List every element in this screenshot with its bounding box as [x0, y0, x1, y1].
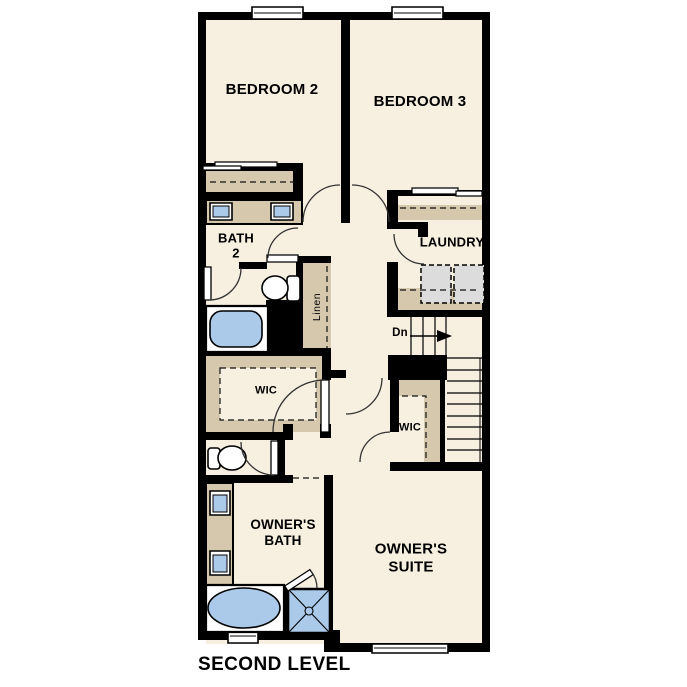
- owners-bath-label: OWNER'SBATH: [250, 517, 315, 549]
- toilet-room-door: [271, 441, 278, 475]
- washer: [421, 265, 451, 303]
- bedroom2-window: [252, 7, 303, 19]
- wic-right-label: WIC: [399, 422, 421, 435]
- bath2-sink-2: [271, 203, 293, 220]
- bedroom3-label: BEDROOM 3: [374, 93, 467, 111]
- wic-left-door: [321, 380, 329, 432]
- owners-oval-tub: [206, 585, 284, 632]
- bedroom2-label: BEDROOM 2: [226, 81, 319, 99]
- wic-left-label: WIC: [255, 385, 277, 398]
- floor-plan-drawing: [0, 0, 687, 687]
- plan-title: SECOND LEVEL: [198, 654, 351, 676]
- linen-label: Linen: [311, 293, 323, 321]
- stairs-down-label: Dn: [392, 327, 408, 341]
- bedroom3-window: [392, 7, 443, 19]
- bath2-compartment-door: [204, 267, 211, 300]
- floor-plan: BEDROOM 2 BEDROOM 3 BATH2 LAUNDRY Linen …: [0, 0, 687, 687]
- owners-sink: [210, 491, 230, 515]
- laundry-label: LAUNDRY: [420, 234, 484, 249]
- owners-suite-label: OWNER'SSUITE: [375, 540, 447, 575]
- dryer: [454, 265, 484, 303]
- bath2-sink: [210, 203, 232, 220]
- owners-sink-2: [210, 551, 230, 575]
- bath2-label: BATH2: [218, 231, 254, 262]
- bath2-bathtub: [206, 306, 268, 352]
- bath2-toilet: [262, 276, 300, 301]
- owners-suite-window: [372, 644, 448, 653]
- owners-toilet: [208, 446, 246, 470]
- bath2-entry-door: [267, 255, 298, 262]
